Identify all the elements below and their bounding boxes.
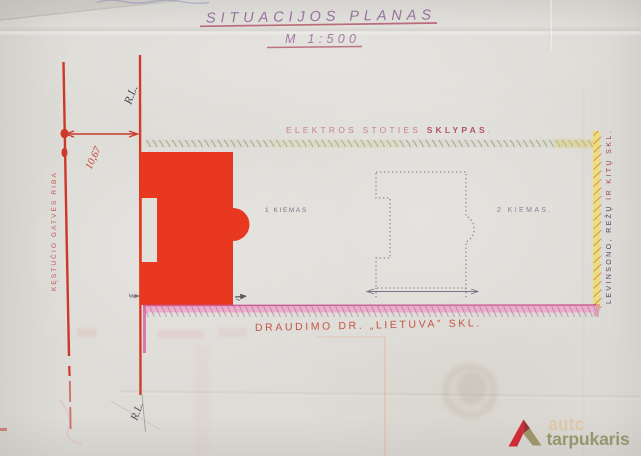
svg-text:M 1:500: M 1:500 <box>285 32 360 46</box>
svg-text:10,67: 10,67 <box>84 145 104 172</box>
svg-text:1 KIEMAS: 1 KIEMAS <box>265 207 308 214</box>
svg-text:R.L.: R.L. <box>122 84 140 107</box>
svg-text:DRAUDIMO DR. „LIETUVA” SKL.: DRAUDIMO DR. „LIETUVA” SKL. <box>255 317 482 334</box>
svg-text:ELEKTROS STOTIES SKLYPAS.: ELEKTROS STOTIES SKLYPAS. <box>286 125 493 135</box>
svg-text:2 KIEMAS.: 2 KIEMAS. <box>497 207 553 214</box>
svg-text:KĘSTUČIO GATVĖS RIBA: KĘSTUČIO GATVĖS RIBA <box>49 171 58 291</box>
svg-text:tarpukaris: tarpukaris <box>547 429 630 449</box>
svg-text:LEVINSONO, REŽŲ IR KITŲ SKL.: LEVINSONO, REŽŲ IR KITŲ SKL. <box>604 129 613 304</box>
